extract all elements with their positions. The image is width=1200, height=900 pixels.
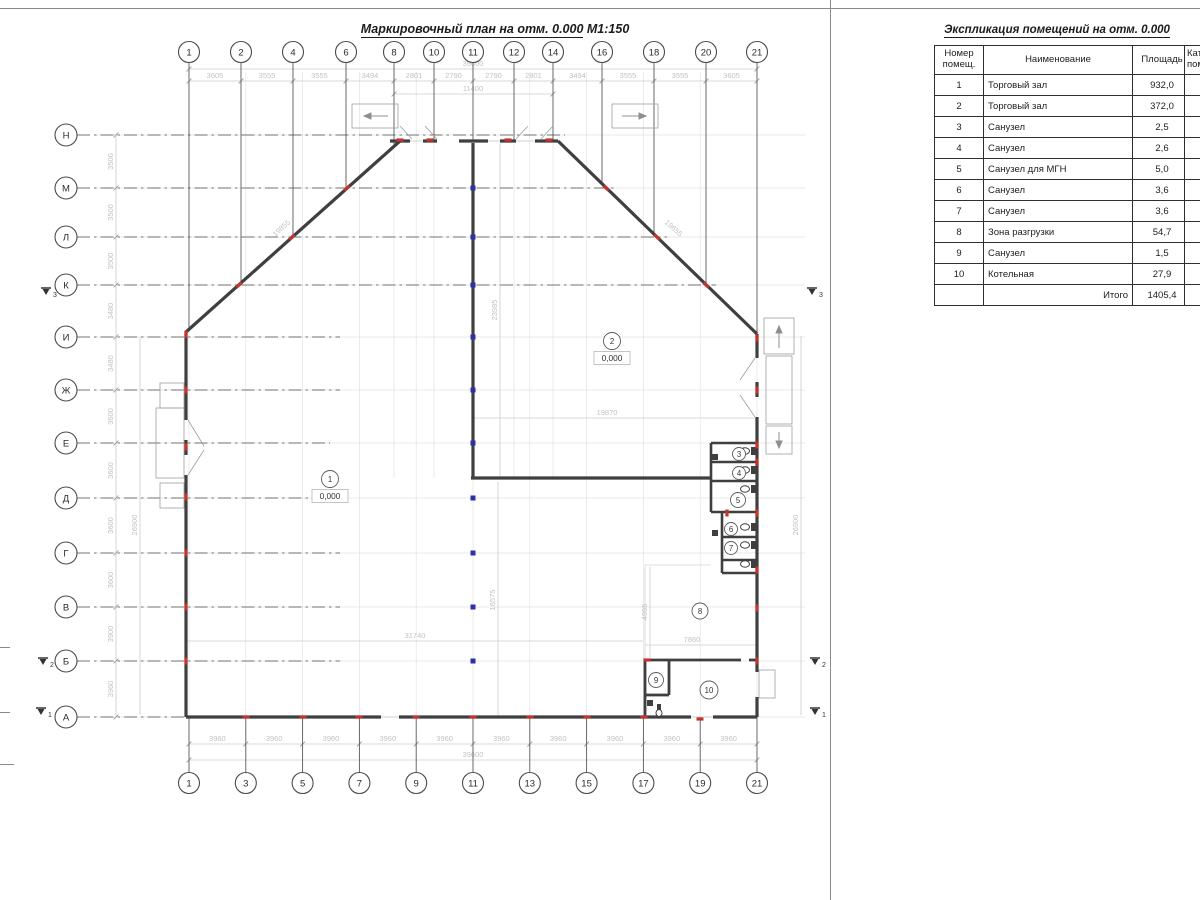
axis-bubble-label: Н — [63, 130, 70, 141]
cell-room-category — [1185, 159, 1200, 180]
arrow-right-icon — [639, 113, 646, 119]
dim-left-segment: 3500 — [106, 204, 115, 221]
cell-room-number: 9 — [935, 243, 984, 264]
dim-top-segment: 3605 — [723, 71, 740, 80]
section-marker-icon — [43, 289, 50, 295]
cell-room-name: Санузел — [984, 138, 1133, 159]
cell-room-name: Санузел для МГН — [984, 159, 1133, 180]
dim-bottom-segment: 3960 — [663, 734, 680, 743]
axis-bubble-label: 17 — [638, 778, 649, 789]
cell-room-area: 932,0 — [1133, 75, 1192, 96]
schedule-row: 10Котельная27,9 — [935, 264, 1192, 285]
vestibules-and-doors — [156, 104, 794, 717]
room-number: 2 — [610, 337, 614, 346]
axis-bubble-label: 9 — [414, 778, 419, 789]
cell-room-area: 1,5 — [1133, 243, 1192, 264]
dim-inner: 26900 — [791, 515, 800, 536]
axis-bubble-label: 5 — [300, 778, 305, 789]
dim-left-segment: 3960 — [106, 681, 115, 698]
total-empty-cell — [935, 285, 984, 306]
dim-bottom-segment: 3960 — [379, 734, 396, 743]
column-marker — [471, 283, 476, 288]
cell-room-category — [1185, 117, 1200, 138]
arrow-up-icon — [776, 326, 782, 333]
dim-inner: 7860 — [684, 635, 701, 644]
wall-marker — [755, 567, 758, 574]
column-marker — [471, 659, 476, 664]
category-row — [1185, 159, 1200, 180]
arrow-down-icon — [776, 441, 782, 448]
axis-bubble-label: 1 — [186, 47, 191, 58]
room-number: 7 — [729, 544, 733, 553]
axis-bubble-label: 16 — [597, 47, 608, 58]
cell-room-number: 6 — [935, 180, 984, 201]
schedule-row: 3Санузел2,5 — [935, 117, 1192, 138]
cell-room-category — [1185, 75, 1200, 96]
dim-top-segment: 3555 — [672, 71, 689, 80]
axis-bubble-label: 12 — [509, 47, 520, 58]
cell-room-number: 4 — [935, 138, 984, 159]
axis-bubble-label: 7 — [357, 778, 362, 789]
dim-left-segment: 3600 — [106, 408, 115, 425]
column-marker — [471, 235, 476, 240]
wall-marker — [184, 658, 187, 665]
dim-bottom-segment: 3960 — [550, 734, 567, 743]
wall-marker — [184, 604, 187, 611]
toilet-tank-icon — [751, 466, 756, 474]
left-vestibule-bottom — [160, 483, 184, 508]
axis-bubble-label: В — [63, 602, 69, 613]
cell-room-name: Санузел — [984, 243, 1133, 264]
dim-top-segment: 2801 — [406, 71, 423, 80]
axis-bubble-label: А — [63, 712, 70, 723]
wall-marker — [725, 510, 728, 517]
dim-top-segment: 2790 — [485, 71, 502, 80]
cell-room-name: Торговый зал — [984, 96, 1133, 117]
axis-bubble-label: 14 — [548, 47, 559, 58]
room-number: 10 — [705, 686, 714, 695]
toilet-tank-icon — [751, 485, 756, 493]
schedule-title: Экспликация помещений на отм. 0.000 — [934, 24, 1180, 36]
toilet-tank-icon — [751, 560, 756, 568]
section-marker-label: 3 — [819, 292, 823, 299]
elevation-value: 0,000 — [320, 491, 341, 501]
room-number: 8 — [698, 607, 702, 616]
axis-bubble-label: 19 — [695, 778, 706, 789]
cell-room-name: Торговый зал — [984, 75, 1133, 96]
cell-room-area: 2,6 — [1133, 138, 1192, 159]
room-number: 1 — [328, 475, 332, 484]
axis-bubble-label: Г — [63, 548, 68, 559]
cell-room-category — [1185, 222, 1200, 243]
dim-bottom-segment: 3960 — [493, 734, 510, 743]
category-row — [1185, 138, 1200, 159]
axis-bubble-label: Л — [63, 232, 69, 243]
axis-bubble-label: И — [63, 332, 70, 343]
wall-marker — [184, 331, 187, 338]
cell-room-category — [1185, 180, 1200, 201]
section-marker-icon — [38, 709, 45, 715]
cell-room-category — [1185, 243, 1200, 264]
category-row — [1185, 96, 1200, 117]
axis-bubble-label: 1 — [186, 778, 191, 789]
dim-inner: 16575 — [488, 590, 497, 611]
axis-bubble-label: 11 — [468, 778, 478, 789]
cell-room-number: 5 — [935, 159, 984, 180]
schedule-row: 5Санузел для МГН5,0 — [935, 159, 1192, 180]
dim-inner: 19655 — [663, 218, 685, 239]
cell-room-number: 2 — [935, 96, 984, 117]
cell-room-number: 10 — [935, 264, 984, 285]
axis-bubble-label: 3 — [243, 778, 248, 789]
wall-marker — [755, 442, 758, 449]
schedule-total-row: Итого 1405,4 — [935, 285, 1192, 306]
section-marker-icon — [812, 659, 819, 665]
dim-bottom-segment: 3960 — [436, 734, 453, 743]
dim-left-segment: 3480 — [106, 303, 115, 320]
cell-room-name: Санузел — [984, 180, 1133, 201]
dim-left-segment: 3900 — [106, 626, 115, 643]
total-label: Итого — [984, 285, 1133, 306]
cell-room-area: 3,6 — [1133, 180, 1192, 201]
cell-room-name: Котельная — [984, 264, 1133, 285]
column-marker — [471, 186, 476, 191]
sink-icon — [712, 530, 718, 536]
schedule-row: 2Торговый зал372,0 — [935, 96, 1192, 117]
left-vestibule-top — [160, 383, 184, 408]
cell-room-name: Санузел — [984, 117, 1133, 138]
wall-marker — [300, 715, 307, 718]
dim-inner: 31740 — [405, 631, 426, 640]
cell-room-area: 54,7 — [1133, 222, 1192, 243]
toilet-bowl-icon — [741, 561, 750, 567]
floor-plan: 3960036053555355534942801279027902801349… — [0, 0, 830, 900]
schedule-row: 7Санузел3,6 — [935, 201, 1192, 222]
column-marker — [471, 335, 476, 340]
wall-marker — [470, 715, 477, 718]
dim-left-segment: 3500 — [106, 253, 115, 270]
dim-left-segment: 3480 — [106, 355, 115, 372]
cell-room-category — [1185, 96, 1200, 117]
wall-marker — [755, 335, 758, 342]
column-marker — [471, 441, 476, 446]
wall-marker — [584, 715, 591, 718]
axis-bubble-label: Б — [63, 656, 69, 667]
wall-marker — [427, 138, 434, 141]
cell-room-area: 372,0 — [1133, 96, 1192, 117]
axis-bubble-label: 4 — [290, 47, 295, 58]
schedule-header-row: Номер помещ. Наименование Площадь — [935, 46, 1192, 75]
axis-bubble-label: Ж — [62, 385, 71, 396]
sink-icon — [647, 700, 653, 706]
dim-bottom-segment: 3960 — [607, 734, 624, 743]
left-door-swing — [188, 420, 204, 475]
cell-room-category — [1185, 201, 1200, 222]
axis-bubble-label: 13 — [525, 778, 536, 789]
cell-room-category — [1185, 285, 1200, 306]
dim-top-segment: 2790 — [445, 71, 462, 80]
sheet-frame-divider — [830, 0, 831, 900]
dim-inner: 19870 — [597, 408, 618, 417]
dim-left-segment: 3600 — [106, 517, 115, 534]
dim-bottom-segment: 3960 — [323, 734, 340, 743]
header-room-name: Наименование — [984, 46, 1133, 75]
schedule-row: 6Санузел3,6 — [935, 180, 1192, 201]
dim-top-segment: 3555 — [311, 71, 328, 80]
wall-marker — [184, 387, 187, 394]
section-marker-label: 2 — [822, 662, 826, 669]
arrow-left-icon — [364, 113, 371, 119]
axis-bubble-label: Е — [63, 438, 69, 449]
wall-marker — [356, 715, 363, 718]
axis-bubble-label: М — [62, 183, 70, 194]
room-number: 4 — [737, 469, 742, 478]
schedule-row: 9Санузел1,5 — [935, 243, 1192, 264]
axis-bubble-label: 10 — [429, 47, 440, 58]
cell-room-category — [1185, 138, 1200, 159]
cell-room-area: 3,6 — [1133, 201, 1192, 222]
dim-inner: 4955 — [640, 604, 649, 621]
wall-marker — [527, 715, 534, 718]
cell-room-area: 2,5 — [1133, 117, 1192, 138]
total-value: 1405,4 — [1133, 285, 1192, 306]
category-row — [1185, 264, 1200, 285]
cell-room-name: Зона разгрузки — [984, 222, 1133, 243]
section-marker-label: 1 — [48, 712, 52, 719]
entry-arrows — [364, 113, 782, 448]
schedule-row: 4Санузел2,6 — [935, 138, 1192, 159]
cell-room-area: 27,9 — [1133, 264, 1192, 285]
dim-top-segment: 3494 — [569, 71, 586, 80]
category-row — [1185, 180, 1200, 201]
wall-marker — [697, 717, 704, 720]
dim-top-segment: 2801 — [525, 71, 542, 80]
wall-marker — [184, 444, 187, 451]
room-number: 6 — [729, 525, 733, 534]
cell-room-category — [1185, 264, 1200, 285]
cell-room-name: Санузел — [984, 201, 1133, 222]
sink-icon — [712, 454, 718, 460]
toilet-bowl-icon — [741, 524, 750, 530]
dim-inner: 19855 — [271, 218, 293, 239]
room-number: 9 — [654, 676, 658, 685]
category-row — [1185, 75, 1200, 96]
wall-marker — [755, 459, 758, 466]
category-row — [1185, 222, 1200, 243]
axis-bubble-label: Д — [63, 493, 70, 504]
axis-bubble-label: 8 — [391, 47, 396, 58]
dim-left-segment: 3600 — [106, 572, 115, 589]
cell-room-area: 5,0 — [1133, 159, 1192, 180]
wall-marker — [641, 715, 648, 718]
wall-marker — [184, 494, 187, 501]
wall-marker — [755, 605, 758, 612]
category-row — [1185, 117, 1200, 138]
wall-marker — [413, 715, 420, 718]
toilet-tank-icon — [751, 541, 756, 549]
toilet-tank-icon — [751, 447, 756, 455]
column-marker — [471, 496, 476, 501]
dim-left-segment: 3600 — [106, 462, 115, 479]
toilet-bowl-icon — [656, 710, 662, 717]
axis-bubble-label: К — [63, 280, 69, 291]
room10-vestibule — [759, 670, 775, 698]
cell-room-number: 7 — [935, 201, 984, 222]
toilet-bowl-icon — [741, 486, 750, 492]
dim-top-segment: 3555 — [620, 71, 637, 80]
wall-marker — [546, 138, 553, 141]
header-room-number: Номер помещ. — [935, 46, 984, 75]
schedule-row: 8Зона разгрузки54,7 — [935, 222, 1192, 243]
schedule-row: 1Торговый зал932,0 — [935, 75, 1192, 96]
wall-marker — [505, 138, 512, 141]
column-marker — [471, 551, 476, 556]
section-marker-label: 2 — [50, 662, 54, 669]
column-marker — [471, 605, 476, 610]
section-marker-icon — [40, 659, 47, 665]
axis-bubble-label: 21 — [752, 778, 763, 789]
room-number: 3 — [737, 450, 741, 459]
room-number: 5 — [736, 496, 741, 505]
cell-room-number: 8 — [935, 222, 984, 243]
category-row — [1185, 243, 1200, 264]
wall-marker — [755, 510, 758, 517]
wall-marker — [397, 138, 404, 141]
category-row — [1185, 285, 1200, 306]
axis-bubble-label: 6 — [343, 47, 348, 58]
wall-marker — [755, 387, 758, 394]
dim-bottom-segment: 3960 — [720, 734, 737, 743]
axis-bubble-label: 11 — [468, 47, 478, 58]
wall-marker — [184, 550, 187, 557]
wall-marker — [644, 658, 651, 661]
door-thresholds — [381, 141, 713, 717]
axis-bubble-label: 2 — [238, 47, 243, 58]
section-marker-label: 3 — [53, 292, 57, 299]
dim-top-segment: 3555 — [259, 71, 276, 80]
dim-inner: 26900 — [130, 515, 139, 536]
right-door-swing — [740, 358, 755, 417]
toilet-bowl-icon — [741, 542, 750, 548]
section-marker-icon — [812, 709, 819, 715]
toilet-tank-icon — [751, 523, 756, 531]
dim-top-segment: 3494 — [362, 71, 379, 80]
wall-marker — [755, 658, 758, 665]
axis-bubble-label: 21 — [752, 47, 763, 58]
elevation-value: 0,000 — [602, 353, 623, 363]
column-marker — [471, 388, 476, 393]
axis-bubble-label: 15 — [581, 778, 592, 789]
dim-bottom-segment: 3960 — [266, 734, 283, 743]
category-row — [1185, 201, 1200, 222]
category-column: Кат. пом — [1184, 45, 1200, 306]
dim-left-segment: 3500 — [106, 153, 115, 170]
header-room-category: Кат. пом — [1185, 46, 1200, 75]
axis-bubble-label: 20 — [701, 47, 712, 58]
wall-marker — [243, 715, 250, 718]
section-marker-label: 1 — [822, 712, 826, 719]
room-schedule-table: Номер помещ. Наименование Площадь 1Торго… — [934, 45, 1192, 306]
dim-top-segment: 3605 — [207, 71, 224, 80]
dim-bottom-segment: 3960 — [209, 734, 226, 743]
axis-bubble-label: 18 — [649, 47, 660, 58]
cell-room-number: 3 — [935, 117, 984, 138]
cell-room-number: 1 — [935, 75, 984, 96]
header-room-area: Площадь — [1133, 46, 1192, 75]
section-marker-icon — [809, 289, 816, 295]
dim-inner: 23985 — [490, 300, 499, 321]
